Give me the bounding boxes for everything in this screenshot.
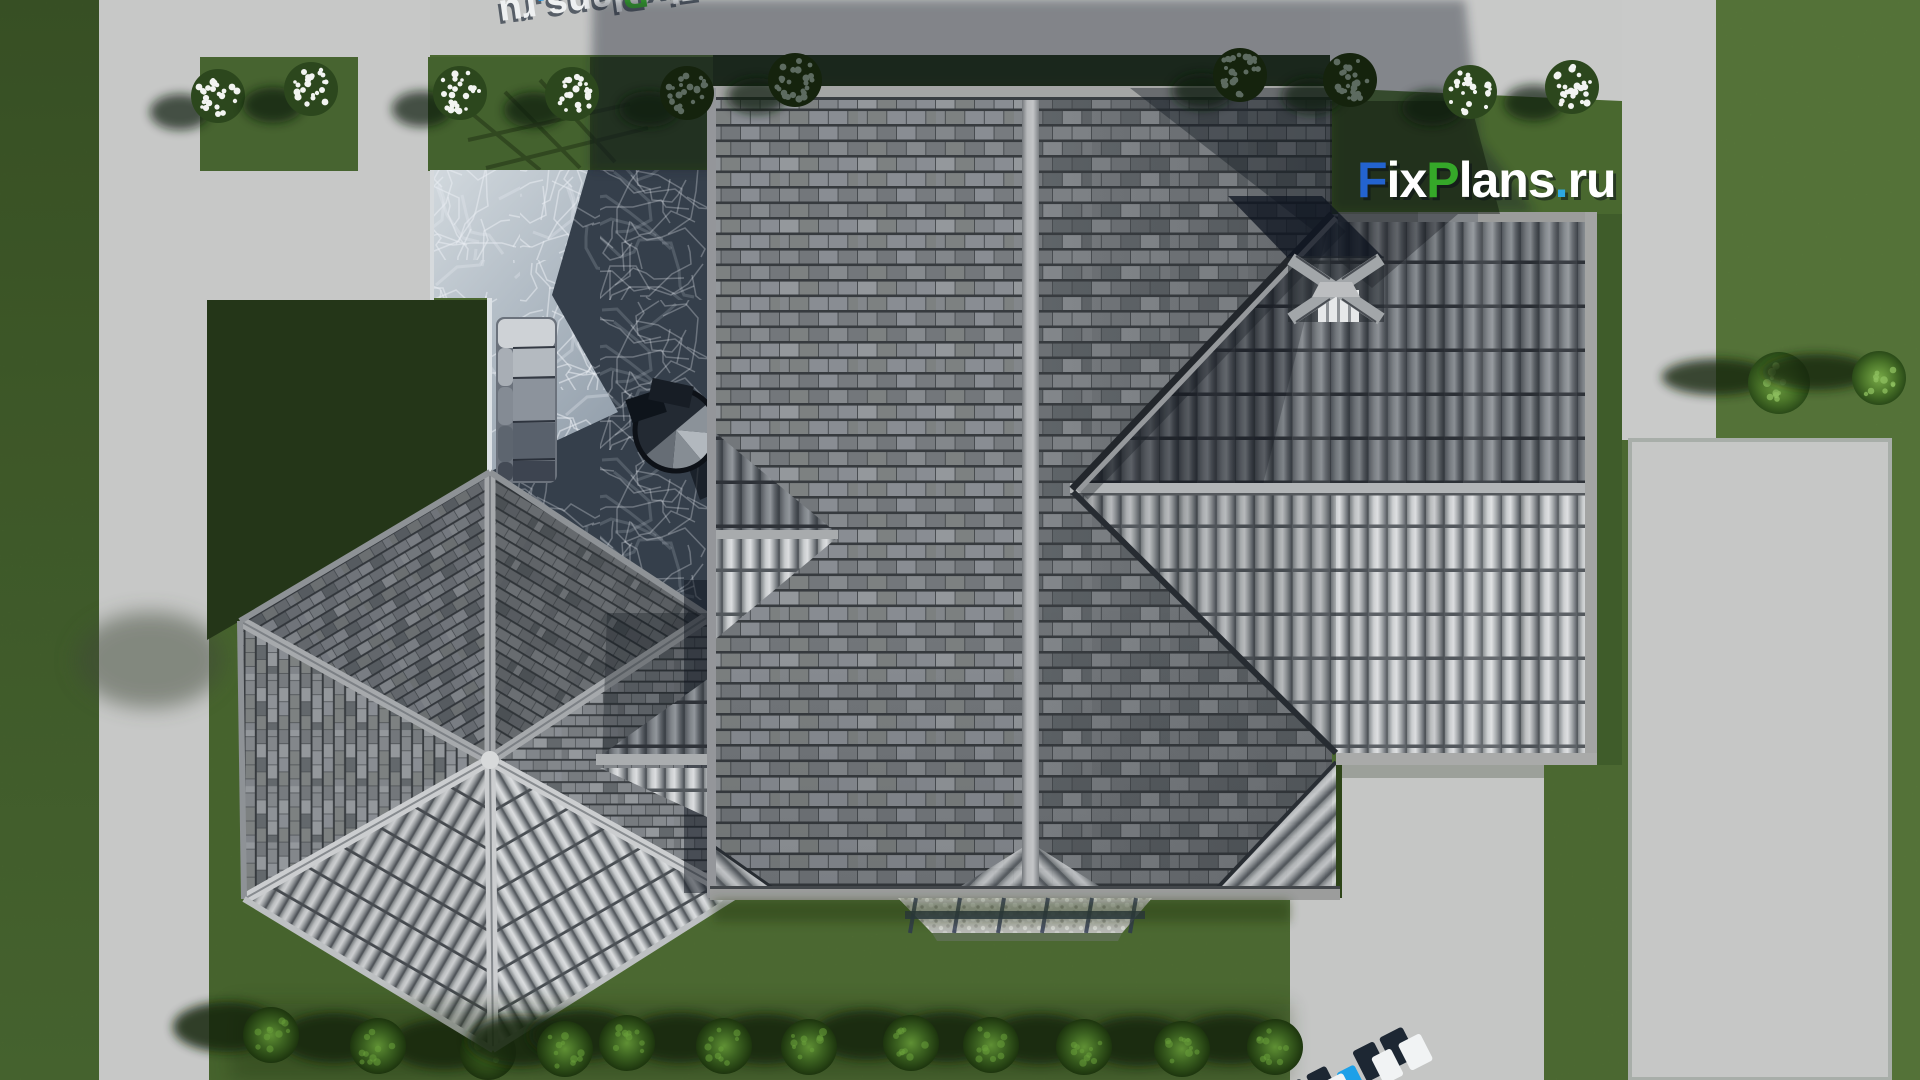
svg-text:FixPlans.ru: FixPlans.ru <box>1357 152 1616 208</box>
